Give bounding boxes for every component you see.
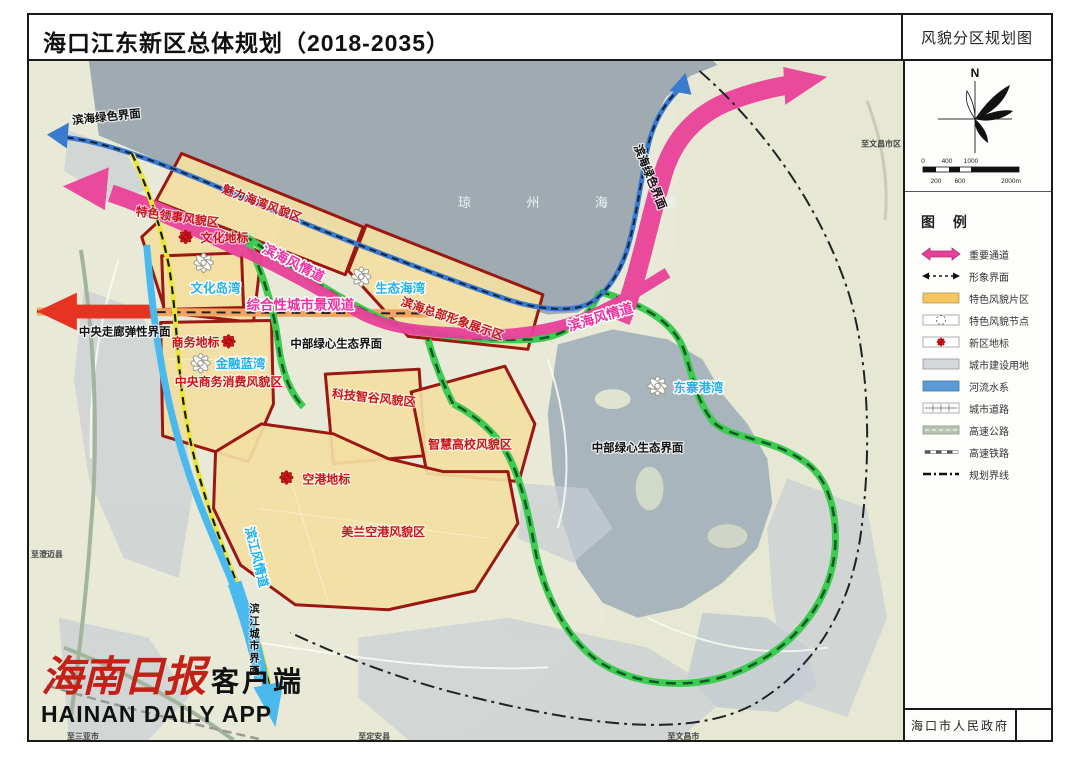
landmark-airport: [280, 471, 294, 485]
page-title: 海口江东新区总体规划（2018-2035）: [29, 15, 901, 59]
highway-icon: [921, 423, 961, 437]
label-to-wenchang-city: 至文昌市区: [861, 139, 901, 149]
label-cbd-zone: 中央商务消费风貌区: [175, 374, 283, 389]
legend-label: 特色风貌节点: [969, 313, 1029, 328]
label-culture-bay: 文化岛湾: [191, 281, 241, 296]
title-bar: 海口江东新区总体规划（2018-2035） 风貌分区规划图: [29, 15, 1051, 61]
landmark-business: [222, 335, 236, 349]
node-eco-bay: [351, 267, 371, 286]
legend: 图 例 重要通道 形象界面: [905, 192, 1051, 708]
legend-label: 高速公路: [969, 423, 1009, 438]
label-to-wenchang: 至文昌市: [668, 731, 700, 740]
node-culture-bay: [194, 253, 214, 272]
label-finance-bay: 金融蓝湾: [215, 356, 266, 371]
landmark-culture: [179, 230, 193, 244]
legend-row: 城市建设用地: [921, 357, 1051, 371]
pink-double-arrow-icon: [921, 247, 961, 261]
legend-label: 河流水系: [969, 379, 1009, 394]
compass-rose-icon: [966, 85, 1013, 143]
legend-row: 高速铁路: [921, 445, 1051, 459]
scale-bar: 0 400 1000 200 600 2000m: [921, 158, 1021, 185]
legend-label: 高速铁路: [969, 445, 1009, 460]
footer-row: 海口市人民政府: [905, 708, 1051, 740]
north-label: N: [971, 66, 980, 80]
logo-cn-calligraphy: 海南日报: [41, 652, 205, 701]
scale-tick: 0: [921, 158, 925, 165]
legend-row: 规划界线: [921, 467, 1051, 481]
map-area: 琼 州 海 峡 滨海绿色界面 滨海绿色界面 魅力海湾风貌区 特色领事风貌区 文化…: [29, 61, 905, 740]
map-subtitle: 风貌分区规划图: [921, 27, 1033, 48]
legend-row: 新区地标: [921, 335, 1051, 349]
node-dongzhai-bay: [648, 376, 668, 395]
label-to-sanya: 至三亚市: [67, 731, 99, 740]
blue-area-icon: [921, 379, 961, 393]
label-to-chengmai: 至澄迈县: [31, 549, 63, 559]
legend-row: 城市道路: [921, 401, 1051, 415]
sidebar: N 0 400 1000: [905, 61, 1051, 740]
label-business-landmark: 商务地标: [172, 334, 220, 349]
scale-tick: 1000: [964, 158, 979, 165]
label-comprehensive-road: 综合性城市景观道: [247, 297, 355, 313]
yellow-area-icon: [921, 291, 961, 305]
node-finance-bay: [191, 354, 211, 373]
legend-label: 城市建设用地: [969, 357, 1029, 372]
legend-row: 特色风貌节点: [921, 313, 1051, 327]
content-row: 琼 州 海 峡 滨海绿色界面 滨海绿色界面 魅力海湾风貌区 特色领事风貌区 文化…: [29, 61, 1051, 740]
government-credit: 海口市人民政府: [905, 710, 1015, 740]
legend-label: 形象界面: [969, 269, 1009, 284]
plan-map: 琼 州 海 峡 滨海绿色界面 滨海绿色界面 魅力海湾风貌区 特色领事风貌区 文化…: [29, 61, 903, 740]
city-road-icon: [921, 401, 961, 415]
footer-empty-cell: [1015, 710, 1051, 740]
logo-row: 海南日报客户端: [41, 656, 304, 698]
gray-area-icon: [921, 357, 961, 371]
legend-row: 形象界面: [921, 269, 1051, 283]
legend-row: 重要通道: [921, 247, 1051, 261]
legend-row: 特色风貌片区: [921, 291, 1051, 305]
legend-row: 河流水系: [921, 379, 1051, 393]
scale-tick: 2000m: [1001, 178, 1021, 185]
scale-tick: 200: [931, 178, 942, 185]
legend-row: 高速公路: [921, 423, 1051, 437]
label-airport-landmark: 空港地标: [302, 472, 350, 487]
label-culture-landmark: 文化地标: [201, 230, 249, 245]
compass-and-scale: N 0 400 1000: [905, 61, 1051, 189]
label-central-corridor: 中央走廊弹性界面: [79, 324, 171, 338]
label-green-core-right: 中部绿心生态界面: [592, 441, 684, 455]
legend-label: 新区地标: [969, 335, 1009, 350]
hainan-daily-logo: 海南日报客户端 HAINAN DAILY APP: [41, 656, 304, 726]
label-to-dingan: 至定安县: [358, 731, 390, 740]
scale-tick: 400: [942, 158, 953, 165]
high-speed-rail-icon: [921, 445, 961, 459]
sheet-frame: 海口江东新区总体规划（2018-2035） 风貌分区规划图: [27, 13, 1053, 742]
label-airport-zone: 美兰空港风貌区: [341, 524, 425, 539]
red-flower-landmark-icon: [921, 335, 961, 349]
scale-tick: 600: [955, 178, 966, 185]
legend-label: 规划界线: [969, 467, 1009, 482]
plan-sheet: 海口江东新区总体规划（2018-2035） 风貌分区规划图: [0, 0, 1080, 764]
label-dongzhai-bay: 东寨港湾: [674, 380, 724, 395]
legend-label: 特色风貌片区: [969, 291, 1029, 306]
dashed-circle-node-icon: [921, 313, 961, 327]
logo-client-text: 客户端: [211, 666, 304, 697]
logo-en-text: HAINAN DAILY APP: [41, 703, 304, 726]
legend-label: 重要通道: [969, 247, 1009, 262]
compass-box: N 0 400 1000: [905, 61, 1051, 192]
black-dashed-arrow-icon: [921, 269, 961, 283]
label-green-core-left: 中部绿心生态界面: [290, 336, 382, 350]
label-eco-bay: 生态海湾: [375, 281, 425, 296]
label-edu-zone: 智慧高校风貌区: [427, 437, 512, 452]
map-subtitle-cell: 风貌分区规划图: [901, 15, 1051, 59]
legend-title: 图 例: [921, 212, 1051, 232]
legend-label: 城市道路: [969, 401, 1009, 416]
planning-boundary-icon: [921, 467, 961, 481]
